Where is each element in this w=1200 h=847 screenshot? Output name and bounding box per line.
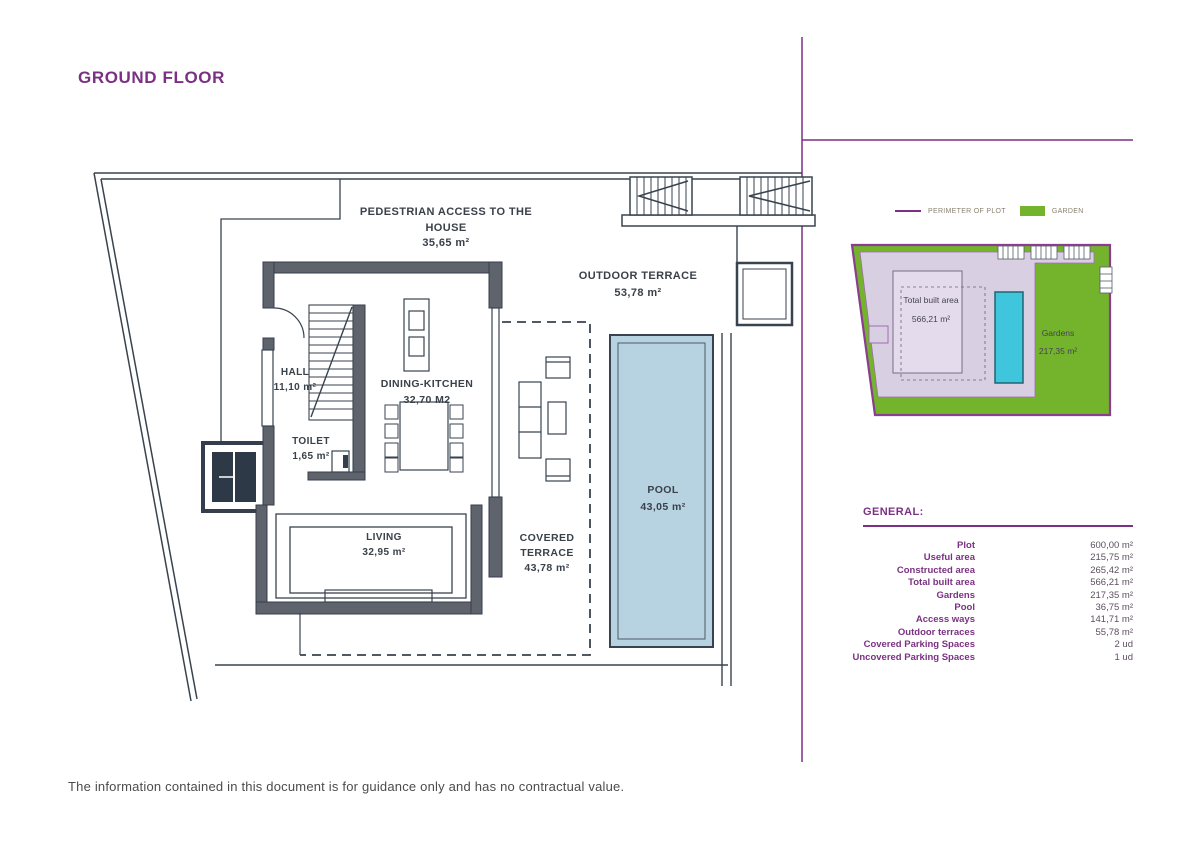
garden-swatch (1020, 206, 1045, 216)
row-value: 1 ud (975, 652, 1133, 664)
table-row: Useful area 215,75 m² (820, 552, 1133, 564)
staircase (309, 305, 353, 420)
table-row: Total built area 566,21 m² (820, 577, 1133, 589)
table-row: Gardens 217,35 m² (820, 590, 1133, 602)
covered-terrace-label: COVERED (520, 532, 575, 544)
table-row: Plot 600,00 m² (820, 540, 1133, 552)
table-row: Constructed area 265,42 m² (820, 565, 1133, 577)
total-built-area-value: 566,21 m² (912, 314, 950, 324)
pool-walkway (722, 226, 737, 686)
row-value: 36,75 m² (975, 602, 1133, 614)
table-row: Covered Parking Spaces 2 ud (820, 639, 1133, 651)
gardens-value: 217,35 m² (1039, 346, 1077, 356)
pool-label: POOL (647, 484, 679, 496)
legend-label: GARDEN (1052, 208, 1084, 215)
entrance-door-arc (274, 308, 304, 338)
toilet-fixture (332, 451, 349, 472)
dining-kitchen-area: 32,70 M2 (404, 394, 451, 406)
ground-floor-plan: PEDESTRIAN ACCESS TO THE HOUSE 35,65 m² … (0, 0, 1200, 847)
disclaimer-text: The information contained in this docume… (68, 779, 624, 794)
row-value: 55,78 m² (975, 627, 1133, 639)
row-label: Useful area (820, 552, 975, 564)
living-label: LIVING (366, 532, 402, 543)
row-label: Uncovered Parking Spaces (820, 652, 975, 664)
table-row: Uncovered Parking Spaces 1 ud (820, 652, 1133, 664)
floor-plan-page: GROUND FLOOR (0, 0, 1200, 847)
perimeter-line-swatch (895, 210, 921, 212)
kitchen-island (404, 299, 429, 371)
legend: PERIMETER OF PLOT GARDEN (895, 206, 1084, 216)
elevator (203, 443, 265, 511)
total-built-area-label: Total built area (903, 295, 959, 305)
dining-kitchen-label: DINING-KITCHEN (381, 378, 474, 390)
outdoor-terrace-area: 53,78 m² (614, 287, 661, 299)
row-value: 566,21 m² (975, 577, 1133, 589)
pool-area: 43,05 m² (640, 501, 685, 513)
row-label: Constructed area (820, 565, 975, 577)
legend-label: PERIMETER OF PLOT (928, 208, 1006, 215)
hall-area: 11,10 m² (274, 382, 317, 393)
table-row: Outdoor terraces 55,78 m² (820, 627, 1133, 639)
gardens-label: Gardens (1042, 328, 1075, 338)
outdoor-terrace-label: OUTDOOR TERRACE (579, 270, 697, 282)
hall-label: HALL (281, 367, 309, 378)
terrace-furniture (519, 357, 570, 481)
row-label: Gardens (820, 590, 975, 602)
toilet-label: TOILET (292, 436, 330, 447)
covered-terrace-area: 43,78 m² (524, 562, 569, 574)
svg-text:HOUSE: HOUSE (425, 222, 466, 234)
row-value: 2 ud (975, 639, 1133, 651)
general-section: GENERAL: Plot 600,00 m² Useful area 215,… (820, 506, 1133, 664)
row-label: Plot (820, 540, 975, 552)
row-label: Covered Parking Spaces (820, 639, 975, 651)
living-area: 32,95 m² (362, 547, 405, 558)
pedestrian-access-label: PEDESTRIAN ACCESS TO THE (360, 206, 532, 218)
pedestrian-access-area: 35,65 m² (422, 237, 469, 249)
access-ramps (622, 177, 815, 226)
general-table: Plot 600,00 m² Useful area 215,75 m² Con… (820, 540, 1133, 664)
row-value: 600,00 m² (975, 540, 1133, 552)
row-value: 141,71 m² (975, 614, 1133, 626)
row-value: 265,42 m² (975, 565, 1133, 577)
planter-box (737, 263, 792, 325)
legend-item-perimeter: PERIMETER OF PLOT (895, 208, 1006, 215)
row-value: 217,35 m² (975, 590, 1133, 602)
legend-item-garden: GARDEN (1020, 206, 1084, 216)
table-row: Pool 36,75 m² (820, 602, 1133, 614)
toilet-area: 1,65 m² (292, 451, 330, 462)
svg-text:TERRACE: TERRACE (520, 547, 574, 559)
general-rule (863, 525, 1133, 527)
row-label: Total built area (820, 577, 975, 589)
table-row: Access ways 141,71 m² (820, 614, 1133, 626)
row-label: Access ways (820, 614, 975, 626)
site-plan-inset: Total built area 566,21 m² Gardens 217,3… (852, 245, 1112, 415)
dining-table (385, 402, 463, 472)
row-label: Pool (820, 602, 975, 614)
site-pool (995, 292, 1023, 383)
general-heading: GENERAL: (863, 506, 1133, 518)
row-label: Outdoor terraces (820, 627, 975, 639)
row-value: 215,75 m² (975, 552, 1133, 564)
